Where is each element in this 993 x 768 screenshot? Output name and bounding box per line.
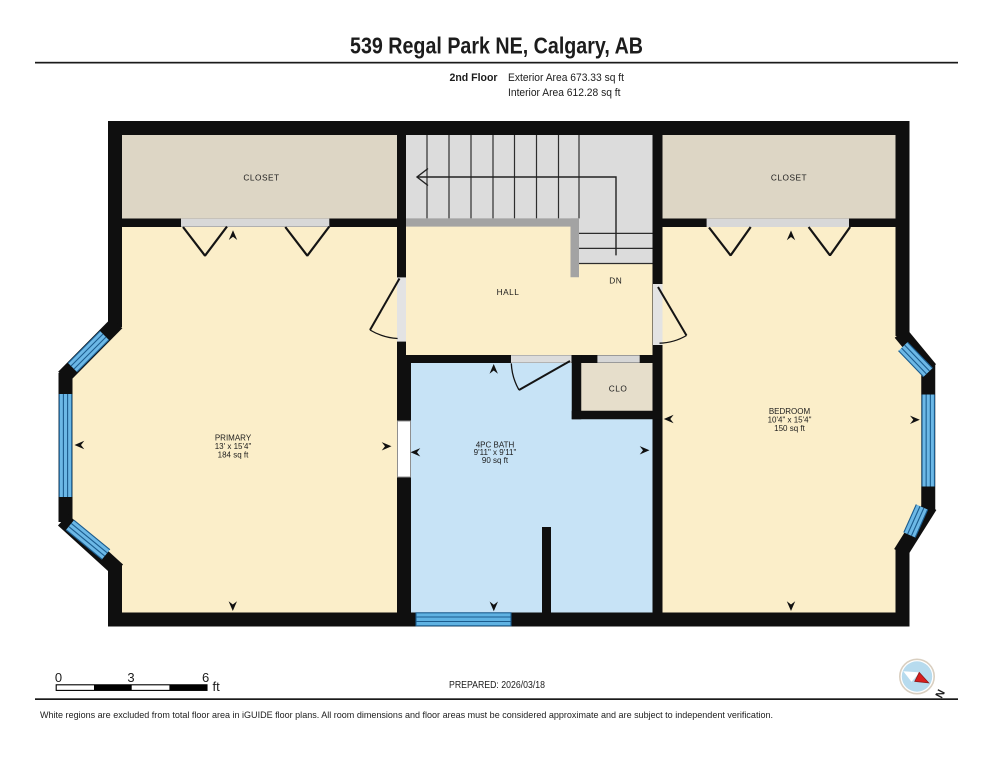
- svg-text:PREPARED: 2026/03/18: PREPARED: 2026/03/18: [449, 680, 545, 691]
- svg-text:150 sq ft: 150 sq ft: [774, 424, 805, 433]
- svg-text:184 sq ft: 184 sq ft: [218, 451, 249, 460]
- svg-text:6: 6: [202, 670, 209, 685]
- svg-text:0: 0: [55, 670, 62, 685]
- svg-text:DN: DN: [609, 276, 622, 286]
- svg-text:HALL: HALL: [497, 287, 520, 297]
- svg-text:3: 3: [127, 670, 134, 685]
- svg-text:White regions are excluded fro: White regions are excluded from total fl…: [40, 710, 773, 721]
- svg-text:Interior Area 612.28 sq ft: Interior Area 612.28 sq ft: [508, 87, 621, 99]
- svg-text:539 Regal Park NE, Calgary, AB: 539 Regal Park NE, Calgary, AB: [350, 33, 643, 59]
- svg-text:ft: ft: [213, 679, 221, 694]
- svg-text:2nd Floor: 2nd Floor: [450, 72, 499, 84]
- svg-text:90 sq ft: 90 sq ft: [482, 456, 509, 465]
- svg-text:CLOSET: CLOSET: [771, 173, 807, 183]
- svg-text:Exterior Area 673.33 sq ft: Exterior Area 673.33 sq ft: [508, 72, 624, 84]
- svg-text:CLOSET: CLOSET: [243, 173, 279, 183]
- svg-text:CLO: CLO: [609, 384, 628, 394]
